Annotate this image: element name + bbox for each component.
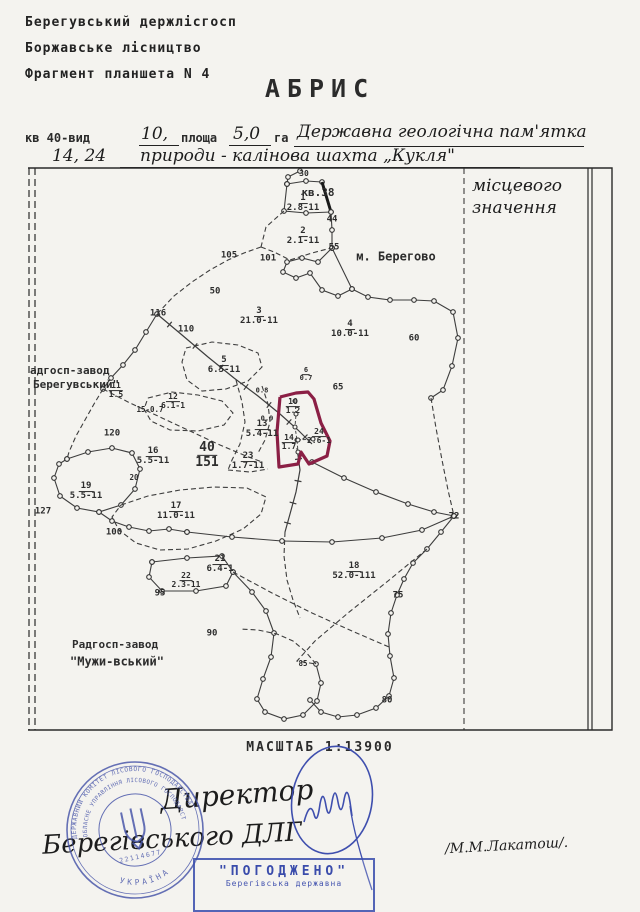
boundary-path <box>322 182 331 212</box>
boundary-path <box>112 487 266 550</box>
boundary-path <box>240 629 316 664</box>
boundary-path <box>228 469 268 472</box>
stamp-country-text: УКРАЇНА <box>117 866 173 892</box>
scanned-forestry-abris-document: { "header": { "line1": "Берегувський дер… <box>0 0 640 900</box>
boundary-path <box>297 549 427 664</box>
boundary-path <box>261 211 284 247</box>
boundary-path <box>431 398 454 516</box>
boundary-path <box>258 386 270 453</box>
boundary-path <box>261 247 331 260</box>
boundary-path <box>144 392 233 431</box>
boundary-path <box>284 532 300 618</box>
stamp-number: 22114677 <box>119 848 163 865</box>
boundary-path <box>187 516 454 542</box>
boundary-path <box>149 556 233 591</box>
boundary-path <box>103 389 262 462</box>
approval-stamp-subtitle: Берегівська державна <box>195 879 373 888</box>
boundary-path <box>157 247 261 314</box>
boundary-path <box>157 314 312 444</box>
boundary-path <box>312 462 454 516</box>
boundary-path <box>67 389 103 459</box>
approval-stamp: "ПОГОДЖЕНО" Берегівська державна <box>193 858 375 912</box>
boundary-path <box>233 572 321 719</box>
highlighted-plot-outline <box>277 392 330 467</box>
trident-emblem <box>121 806 149 850</box>
boundary-path <box>233 572 389 647</box>
boundary-path <box>352 289 458 398</box>
approval-stamp-title: "ПОГОДЖЕНО" <box>195 864 373 879</box>
boundary-path <box>228 380 245 470</box>
boundary-path <box>283 248 352 296</box>
boundary-path <box>310 516 454 717</box>
